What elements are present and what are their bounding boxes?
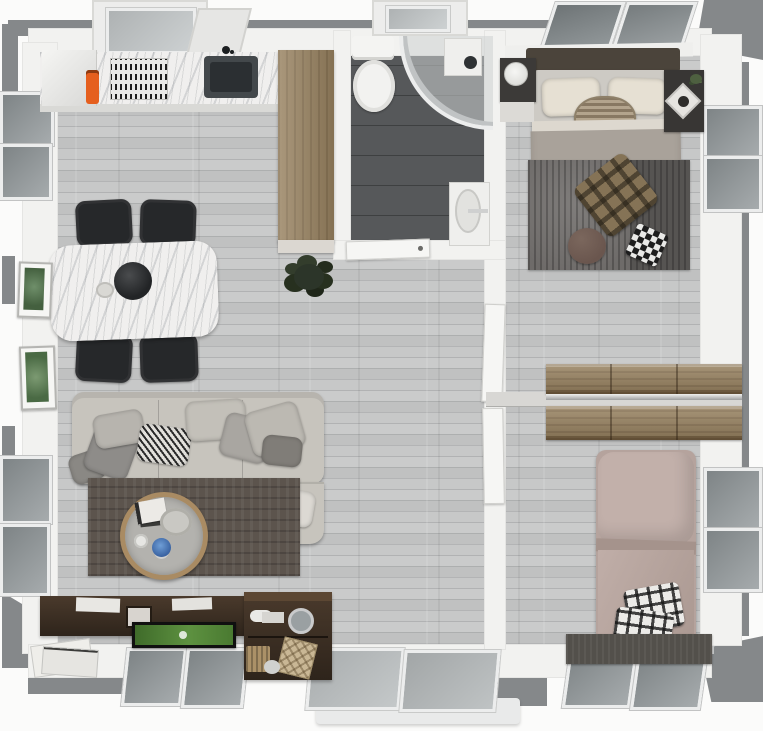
window-right-lower-b (704, 528, 762, 592)
tv-screen-image (135, 625, 233, 645)
center-bowl (114, 262, 152, 300)
orange-bottle (86, 70, 99, 104)
window-bottom-left-a (121, 648, 187, 706)
console-paper-2 (172, 597, 212, 610)
sofa-pillow-patterned (136, 423, 193, 468)
interior-door-1 (481, 304, 505, 403)
botanical-art-1-print (23, 268, 44, 311)
bathroom-sink-unit (449, 182, 490, 246)
water-glass (134, 534, 148, 548)
window-bottom-left-b (181, 648, 249, 708)
window-left-lower-b (0, 524, 50, 596)
sofa-pillow-6 (261, 434, 304, 468)
dining-chair-1 (75, 199, 133, 248)
sliding-door-pane-right (399, 650, 500, 712)
window-right-lower-a (704, 468, 762, 530)
window-right-upper-a (704, 106, 762, 158)
botanical-art-1 (17, 261, 53, 318)
kitchen-sink (204, 56, 258, 98)
toilet-bowl (353, 60, 395, 112)
outer-wall-left-mid (2, 256, 15, 304)
floor-plant (294, 264, 324, 290)
tall-wood-cabinet (278, 50, 334, 242)
blue-cup (152, 538, 171, 557)
bathroom-door-handle (418, 246, 423, 251)
bathroom-faucet (468, 209, 488, 213)
floor-magazine-2 (41, 646, 99, 678)
dresser-chrome-rail (546, 394, 742, 400)
toilet-tank (352, 36, 394, 60)
dining-chair-2 (139, 199, 197, 247)
tv-flatscreen (132, 622, 236, 648)
shower-fixture-panel (444, 38, 482, 76)
dresser-upper (546, 364, 742, 394)
bed2-pillow-top (598, 452, 694, 544)
desk-switch-panel (262, 612, 284, 623)
console-paper-1 (76, 597, 120, 613)
desk-top-edge (244, 592, 332, 601)
window-left-upper-b (0, 144, 52, 200)
bathroom-top-window (372, 0, 468, 36)
bed1-headboard (526, 48, 680, 72)
serving-tray (160, 508, 192, 536)
dresser-lower (546, 406, 742, 440)
window-right-upper-b (704, 156, 762, 212)
small-plate (96, 282, 114, 298)
floor-plan (0, 0, 763, 731)
wall-bathroom-left (333, 30, 351, 256)
dresser-upper-seam-2 (676, 364, 678, 394)
dresser-lower-seam-1 (610, 406, 612, 440)
table-lamp (504, 62, 528, 86)
hood-glass-pane (106, 8, 196, 54)
kitchen-sink-basin (210, 62, 252, 92)
bathroom-window-pane (386, 6, 450, 32)
window-left-lower-a (0, 456, 52, 524)
botanical-art-2-print (25, 352, 49, 403)
decor-tray-bowl (678, 96, 689, 107)
dining-chair-4 (139, 333, 199, 383)
botanical-art-2 (19, 345, 57, 410)
desk-plate (264, 660, 280, 674)
interior-door-2 (482, 408, 505, 504)
bathroom-door (346, 239, 431, 261)
tall-cabinet-end-cap (278, 240, 334, 253)
desk-mirror (288, 608, 314, 634)
dresser-upper-seam-1 (610, 364, 612, 394)
kitchen-faucet (222, 46, 230, 54)
shower-drain-knob (464, 56, 477, 69)
cooktop (110, 58, 168, 100)
bed2-foot-bench (566, 634, 712, 664)
dresser-lower-seam-2 (676, 406, 678, 440)
round-pouf (568, 228, 606, 264)
tv-screen-highlight (179, 631, 187, 639)
nightstand-plant (690, 74, 702, 84)
nightstand-left-drawer (500, 102, 534, 122)
